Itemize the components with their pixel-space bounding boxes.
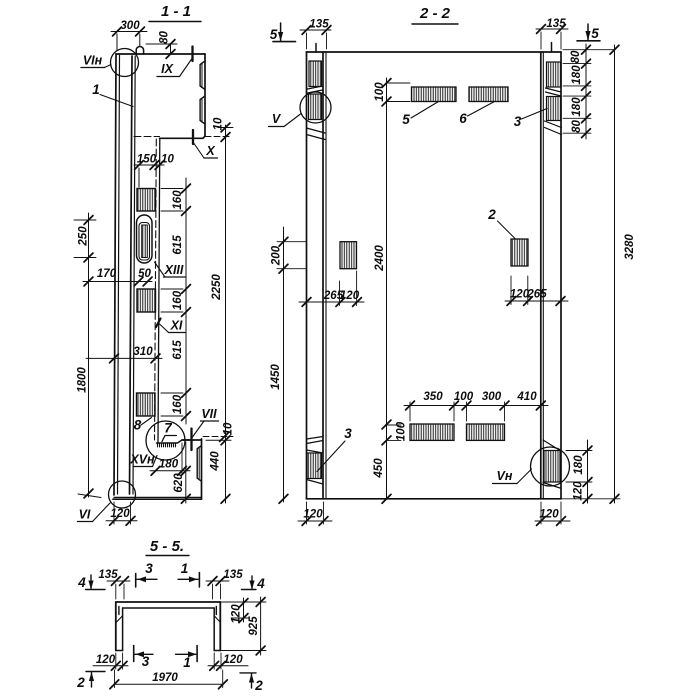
svg-text:120: 120: [96, 654, 116, 666]
svg-text:10: 10: [213, 117, 225, 130]
svg-text:615: 615: [172, 235, 184, 255]
svg-text:615: 615: [172, 340, 184, 360]
svg-text:50: 50: [138, 268, 151, 280]
svg-text:X: X: [205, 144, 215, 158]
svg-text:5: 5: [591, 26, 599, 41]
svg-text:180: 180: [159, 459, 179, 471]
svg-text:VIн: VIн: [83, 54, 103, 68]
svg-text:200: 200: [271, 245, 283, 266]
svg-text:120: 120: [231, 604, 243, 624]
svg-text:300: 300: [120, 20, 140, 32]
svg-text:VII: VII: [201, 407, 217, 421]
svg-text:2400: 2400: [374, 245, 386, 272]
svg-text:80: 80: [571, 120, 583, 133]
svg-text:440: 440: [210, 451, 222, 472]
svg-text:5: 5: [270, 27, 278, 42]
svg-text:6: 6: [459, 111, 467, 126]
svg-text:150: 150: [137, 154, 157, 166]
svg-text:120: 120: [539, 509, 559, 521]
svg-text:1: 1: [92, 82, 100, 97]
svg-text:120: 120: [110, 508, 130, 520]
svg-text:IX: IX: [161, 62, 173, 76]
svg-text:265: 265: [526, 289, 547, 301]
svg-text:120: 120: [340, 290, 360, 302]
svg-text:120: 120: [223, 654, 243, 666]
svg-text:XI: XI: [170, 319, 183, 333]
svg-text:1: 1: [183, 655, 191, 670]
svg-text:160: 160: [172, 290, 184, 310]
svg-text:1450: 1450: [270, 364, 282, 390]
svg-text:100: 100: [374, 82, 386, 102]
svg-text:180: 180: [571, 97, 583, 117]
svg-text:450: 450: [373, 458, 385, 479]
svg-text:135: 135: [309, 19, 329, 31]
svg-text:120: 120: [573, 481, 585, 501]
svg-text:135: 135: [98, 569, 118, 581]
svg-text:2: 2: [487, 207, 496, 222]
svg-text:310: 310: [133, 346, 153, 358]
svg-text:5: 5: [402, 112, 410, 127]
svg-text:VI: VI: [79, 508, 91, 522]
svg-text:180: 180: [573, 455, 585, 475]
svg-text:135: 135: [223, 569, 243, 581]
svg-text:160: 160: [172, 190, 184, 210]
svg-text:925: 925: [248, 616, 260, 636]
svg-text:620: 620: [173, 473, 185, 493]
svg-text:120: 120: [303, 509, 323, 521]
svg-text:170: 170: [97, 268, 117, 280]
svg-text:5 - 5.: 5 - 5.: [150, 538, 184, 555]
svg-text:4: 4: [77, 575, 86, 590]
svg-text:V: V: [272, 112, 282, 126]
svg-text:1: 1: [181, 561, 189, 576]
svg-text:3: 3: [514, 114, 522, 129]
svg-text:XVн: XVн: [129, 453, 155, 467]
svg-text:1800: 1800: [77, 367, 89, 393]
svg-text:3280: 3280: [624, 234, 636, 260]
svg-text:80: 80: [159, 31, 171, 44]
svg-text:135: 135: [546, 18, 566, 30]
svg-text:3: 3: [145, 561, 153, 576]
svg-text:2 - 2: 2 - 2: [419, 5, 451, 22]
svg-text:2: 2: [76, 675, 85, 690]
svg-text:Vн: Vн: [497, 469, 513, 483]
svg-text:350: 350: [423, 391, 443, 403]
svg-text:180: 180: [571, 65, 583, 85]
svg-text:2250: 2250: [211, 274, 223, 301]
svg-text:100: 100: [396, 421, 408, 441]
svg-text:160: 160: [172, 394, 184, 414]
svg-text:250: 250: [78, 226, 90, 247]
svg-text:2: 2: [254, 678, 263, 693]
svg-text:XIII: XIII: [164, 263, 184, 277]
svg-text:3: 3: [344, 426, 352, 441]
svg-text:1 - 1: 1 - 1: [161, 3, 191, 20]
svg-text:4: 4: [256, 576, 265, 591]
svg-text:300: 300: [482, 391, 502, 403]
svg-text:100: 100: [454, 391, 474, 403]
svg-text:410: 410: [516, 391, 537, 403]
svg-text:80: 80: [570, 50, 582, 63]
svg-text:10: 10: [161, 154, 174, 166]
svg-text:1970: 1970: [152, 672, 178, 684]
